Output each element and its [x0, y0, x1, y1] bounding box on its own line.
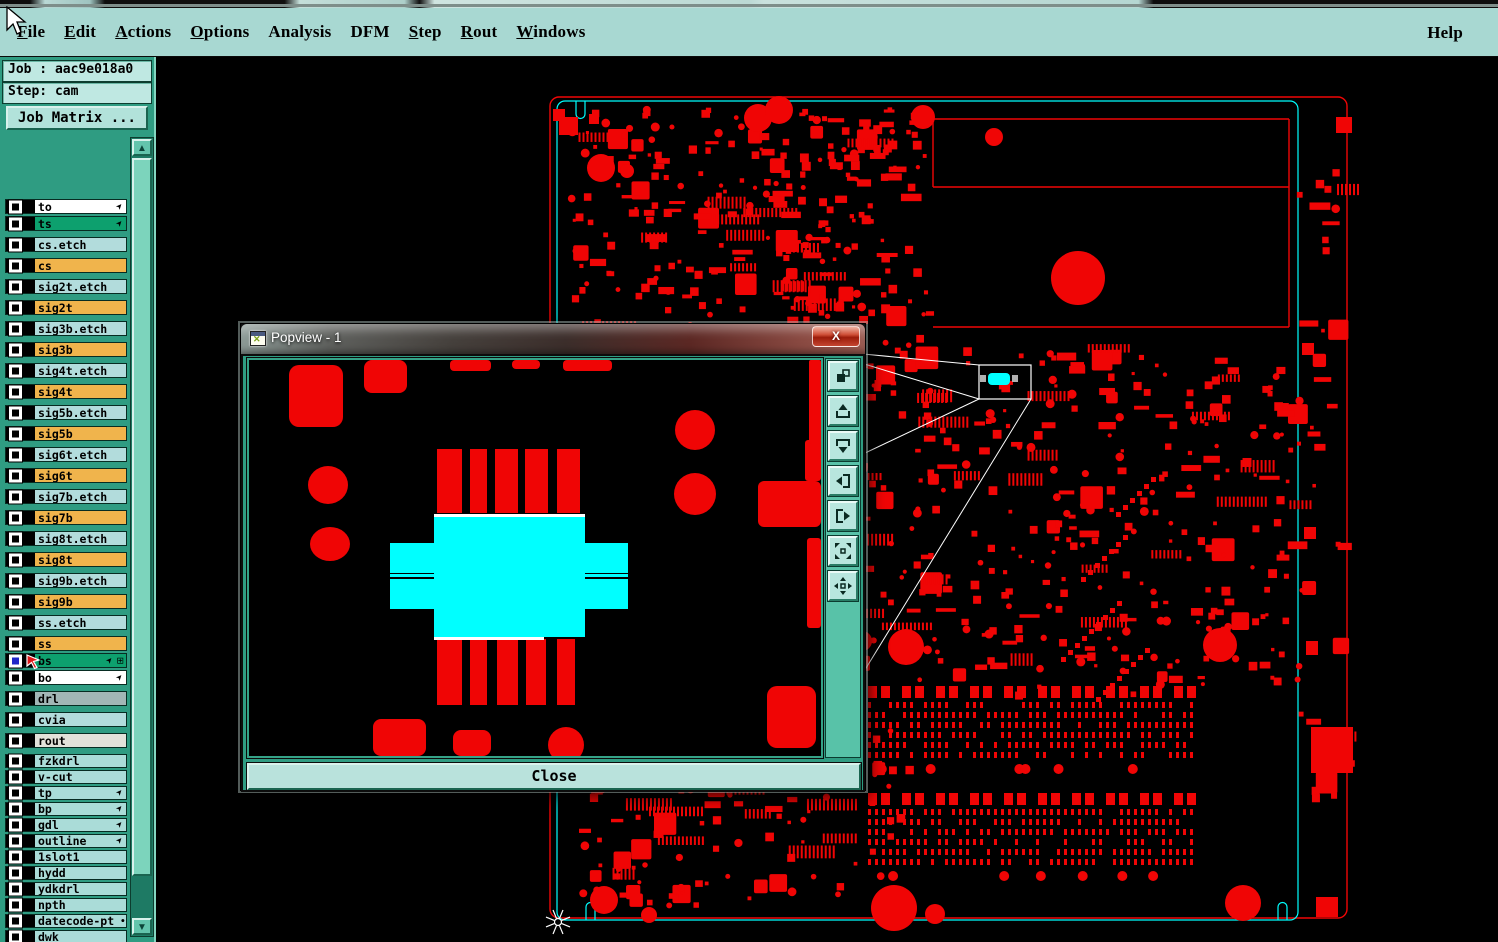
popview-toolbar: [825, 358, 861, 758]
layer-label: drl: [35, 692, 126, 705]
menu-edit[interactable]: Edit: [64, 22, 96, 42]
layer-label: sig5b: [35, 427, 126, 440]
layer-checkbox-bs[interactable]: [9, 654, 22, 667]
layer-label: sig4t: [35, 385, 126, 398]
layer-row-sig9b.etch[interactable]: sig9b.etch: [5, 573, 127, 588]
menu-windows[interactable]: Windows: [516, 22, 585, 42]
layer-label: ss: [35, 637, 126, 650]
layer-row-outline[interactable]: outline➤: [5, 834, 127, 848]
popview-close-button[interactable]: Close: [247, 763, 861, 790]
layer-checkbox-sig5b[interactable]: [9, 427, 22, 440]
background-window-strip: [0, 0, 1498, 8]
scrollbar-thumb[interactable]: [132, 158, 152, 876]
fit-view-icon: [834, 542, 852, 560]
menubar-items: FileEditActionsOptionsAnalysisDFMStepRou…: [17, 22, 605, 42]
layer-checkbox-outline[interactable]: [9, 835, 22, 848]
menu-analysis[interactable]: Analysis: [268, 22, 331, 42]
layer-checkbox-sig8t.etch[interactable]: [9, 532, 22, 545]
layer-checkbox-bp[interactable]: [9, 803, 22, 816]
layer-label: sig3b.etch: [35, 322, 126, 335]
layer-checkbox-to[interactable]: [9, 200, 22, 213]
layer-label: tp: [35, 787, 126, 799]
pan-down-button[interactable]: [828, 431, 858, 461]
pan-right-button[interactable]: [828, 501, 858, 531]
layer-checkbox-sig6t.etch[interactable]: [9, 448, 22, 461]
layer-row-sig3b.etch[interactable]: sig3b.etch: [5, 321, 127, 336]
layer-label: ss.etch: [35, 616, 126, 629]
menu-help[interactable]: Help: [1427, 8, 1463, 57]
fit-view-button[interactable]: [828, 536, 858, 566]
layer-checkbox-ts[interactable]: [9, 217, 22, 230]
layer-label: ts: [35, 217, 126, 230]
layer-row-sig6t.etch[interactable]: sig6t.etch: [5, 447, 127, 462]
job-name-box: Job : aac9e018a0: [2, 60, 152, 82]
layer-row-gdl[interactable]: gdl➤: [5, 818, 127, 832]
layer-row-sig7b.etch[interactable]: sig7b.etch: [5, 489, 127, 504]
step-name-box: Step: cam: [2, 82, 152, 104]
layer-checkbox-gdl[interactable]: [9, 819, 22, 832]
layer-row-rout[interactable]: rout: [5, 733, 127, 748]
popview-titlebar[interactable]: Popview - 1 X: [241, 324, 865, 354]
layer-checkbox-rout[interactable]: [9, 734, 22, 747]
popview-app-icon: [250, 331, 266, 346]
layer-checkbox-cvia[interactable]: [9, 713, 22, 726]
pan-left-icon: [834, 472, 852, 490]
layer-checkbox-1slot1[interactable]: [9, 851, 22, 864]
layer-label: hydd: [35, 867, 126, 879]
layer-row-sig3b[interactable]: sig3b: [5, 342, 127, 357]
layer-checkbox-sig2t[interactable]: [9, 301, 22, 314]
layer-label: ydkdrl: [35, 883, 126, 895]
layer-row-bp[interactable]: bp➤: [5, 802, 127, 816]
layer-label: outline: [35, 835, 126, 847]
pan-left-button[interactable]: [828, 466, 858, 496]
layer-label: sig4t.etch: [35, 364, 126, 377]
layer-checkbox-sig6t[interactable]: [9, 469, 22, 482]
layer-row-ss.etch[interactable]: ss.etch: [5, 615, 127, 630]
layer-checkbox-ss.etch[interactable]: [9, 616, 22, 629]
layer-grid-icon: ⊞: [116, 655, 124, 666]
layer-scrollbar[interactable]: ▲ ▼: [130, 137, 154, 937]
layer-label: datecode-pt: [35, 915, 126, 927]
layer-label: bp: [35, 803, 126, 815]
copy-view-button[interactable]: [828, 361, 858, 391]
layer-label: sig8t.etch: [35, 532, 126, 545]
layer-checkbox-sig9b[interactable]: [9, 595, 22, 608]
layer-row-hydd[interactable]: hydd: [5, 866, 127, 880]
layer-label: sig8t: [35, 553, 126, 566]
layer-checkbox-tp[interactable]: [9, 787, 22, 800]
layer-checkbox-npth[interactable]: [9, 899, 22, 912]
layer-checkbox-cs.etch[interactable]: [9, 238, 22, 251]
pan-down-icon: [834, 437, 852, 455]
layer-label: sig9b: [35, 595, 126, 608]
layer-label: sig7b.etch: [35, 490, 126, 503]
layer-label: cs: [35, 259, 126, 272]
layer-label: to: [35, 200, 126, 213]
menu-options[interactable]: Options: [190, 22, 249, 42]
layer-row-bs[interactable]: bs➤⊞: [5, 653, 127, 668]
expand-view-icon: [834, 577, 852, 595]
layer-row-sig5b.etch[interactable]: sig5b.etch: [5, 405, 127, 420]
popview-window: Popview - 1 X Close: [240, 323, 866, 791]
copy-view-icon: [834, 367, 852, 385]
layer-label: cs.etch: [35, 238, 126, 251]
layer-checkbox-sig7b.etch[interactable]: [9, 490, 22, 503]
layer-label: sig2t: [35, 301, 126, 314]
layer-checkbox-cs[interactable]: [9, 259, 22, 272]
layer-row-sig5b[interactable]: sig5b: [5, 426, 127, 441]
layer-checkbox-dwk[interactable]: [9, 931, 22, 942]
layer-row-npth[interactable]: npth: [5, 898, 127, 912]
menu-rout[interactable]: Rout: [461, 22, 498, 42]
layer-row-ydkdrl[interactable]: ydkdrl: [5, 882, 127, 896]
layer-row-sig2t[interactable]: sig2t: [5, 300, 127, 315]
layer-label: rout: [35, 734, 126, 747]
crosshair-cursor: [546, 910, 570, 934]
popview-canvas[interactable]: [247, 358, 823, 758]
pan-up-icon: [834, 402, 852, 420]
layer-checkbox-fzkdrl[interactable]: [9, 755, 22, 768]
layer-row-sig2t.etch[interactable]: sig2t.etch: [5, 279, 127, 294]
layer-label: sig9b.etch: [35, 574, 126, 587]
layer-checkbox-sig5b.etch[interactable]: [9, 406, 22, 419]
layer-checkbox-sig3b[interactable]: [9, 343, 22, 356]
layer-row-to[interactable]: to➤: [5, 199, 127, 214]
layer-row-dwk[interactable]: dwk: [5, 930, 127, 942]
layer-label: fzkdrl: [35, 755, 126, 767]
layer-checkbox-ss[interactable]: [9, 637, 22, 650]
expand-view-button[interactable]: [828, 571, 858, 601]
sidebar: Job : aac9e018a0 Step: cam Job Matrix ..…: [0, 57, 156, 942]
menu-file[interactable]: File: [17, 22, 45, 42]
layer-row-fzkdrl[interactable]: fzkdrl: [5, 754, 127, 768]
layer-checkbox-drl[interactable]: [9, 692, 22, 705]
layer-row-datecode-pt[interactable]: datecode-pt●: [5, 914, 127, 928]
layer-row-ts[interactable]: ts➤: [5, 216, 127, 231]
layer-label: sig6t: [35, 469, 126, 482]
layer-label: sig2t.etch: [35, 280, 126, 293]
layer-checkbox-sig4t.etch[interactable]: [9, 364, 22, 377]
layer-row-sig6t[interactable]: sig6t: [5, 468, 127, 483]
layer-label: cvia: [35, 713, 126, 726]
layer-label: 1slot1: [35, 851, 126, 863]
layer-row-sig7b[interactable]: sig7b: [5, 510, 127, 525]
layer-row-bo[interactable]: bo➤: [5, 670, 127, 685]
popview-body: Close: [241, 354, 865, 792]
layer-label: sig6t.etch: [35, 448, 126, 461]
layer-checkbox-sig2t.etch[interactable]: [9, 280, 22, 293]
layer-label: gdl: [35, 819, 126, 831]
layer-row-cs.etch[interactable]: cs.etch: [5, 237, 127, 252]
label-truncation-dot: ●: [121, 918, 125, 925]
layer-checkbox-bo[interactable]: [9, 671, 22, 684]
layer-checkbox-sig4t[interactable]: [9, 385, 22, 398]
layer-checkbox-datecode-pt[interactable]: [9, 915, 22, 928]
layer-checkbox-hydd[interactable]: [9, 867, 22, 880]
layer-row-ss[interactable]: ss: [5, 636, 127, 651]
layer-row-drl[interactable]: drl: [5, 691, 127, 706]
layer-checkbox-v-cut[interactable]: [9, 771, 22, 784]
menu-actions[interactable]: Actions: [115, 22, 171, 42]
layer-label: npth: [35, 899, 126, 911]
layer-row-tp[interactable]: tp➤: [5, 786, 127, 800]
layer-label: sig3b: [35, 343, 126, 356]
layer-checkbox-sig7b[interactable]: [9, 511, 22, 524]
layer-row-sig4t[interactable]: sig4t: [5, 384, 127, 399]
layer-row-sig9b[interactable]: sig9b: [5, 594, 127, 609]
layer-row-sig4t.etch[interactable]: sig4t.etch: [5, 363, 127, 378]
menu-step[interactable]: Step: [409, 22, 442, 42]
layer-row-1slot1[interactable]: 1slot1: [5, 850, 127, 864]
layer-row-v-cut[interactable]: v-cut: [5, 770, 127, 784]
menubar: FileEditActionsOptionsAnalysisDFMStepRou…: [0, 8, 1498, 57]
layer-checkbox-sig9b.etch[interactable]: [9, 574, 22, 587]
layer-label: sig5b.etch: [35, 406, 126, 419]
pan-up-button[interactable]: [828, 396, 858, 426]
layer-label: sig7b: [35, 511, 126, 524]
layer-checkbox-sig3b.etch[interactable]: [9, 322, 22, 335]
menu-dfm[interactable]: DFM: [350, 22, 389, 42]
active-layer-arrow-icon: [26, 654, 42, 670]
application-window: FileEditActionsOptionsAnalysisDFMStepRou…: [0, 0, 1498, 942]
layer-label: v-cut: [35, 771, 126, 783]
layer-row-sig8t.etch[interactable]: sig8t.etch: [5, 531, 127, 546]
layer-row-cs[interactable]: cs: [5, 258, 127, 273]
pan-right-icon: [834, 507, 852, 525]
layer-row-sig8t[interactable]: sig8t: [5, 552, 127, 567]
popview-title: Popview - 1: [271, 330, 342, 345]
layer-label: dwk: [35, 931, 126, 942]
layer-label: bo: [35, 671, 126, 684]
layer-checkbox-sig8t[interactable]: [9, 553, 22, 566]
layer-checkbox-ydkdrl[interactable]: [9, 883, 22, 896]
popview-close-x-button[interactable]: X: [812, 326, 860, 347]
layer-row-cvia[interactable]: cvia: [5, 712, 127, 727]
scrollbar-down-button[interactable]: ▼: [132, 918, 152, 935]
job-matrix-button[interactable]: Job Matrix ...: [6, 106, 148, 130]
scrollbar-up-button[interactable]: ▲: [132, 139, 152, 156]
